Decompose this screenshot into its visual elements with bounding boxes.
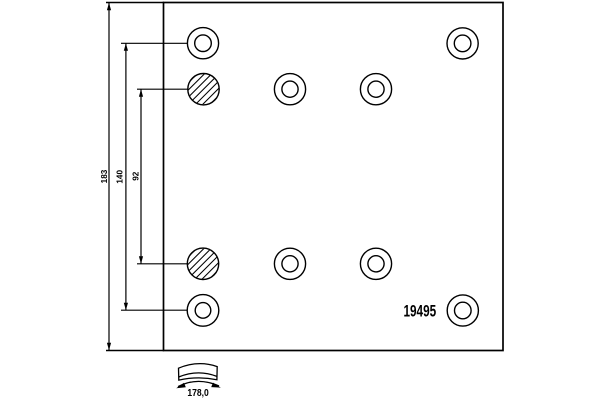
svg-text:183: 183	[100, 169, 109, 183]
svg-text:178,0: 178,0	[187, 386, 208, 398]
svg-text:140: 140	[116, 170, 125, 184]
svg-text:92: 92	[131, 171, 140, 181]
svg-text:19495: 19495	[404, 303, 437, 321]
